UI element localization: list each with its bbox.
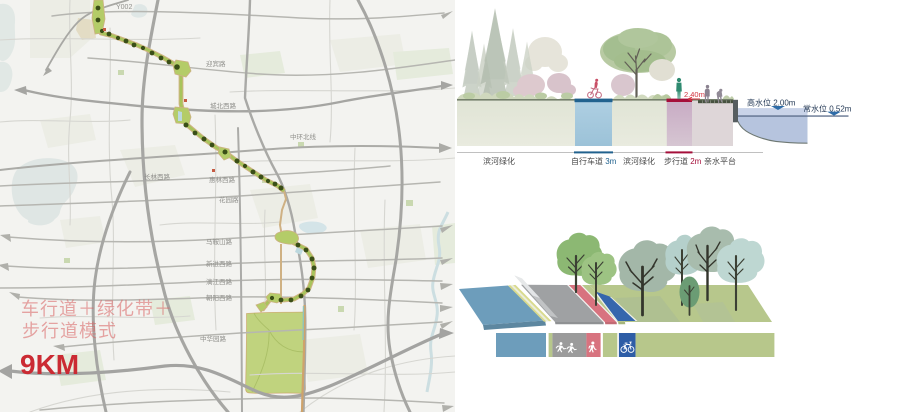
svg-text:常水位 0.52m: 常水位 0.52m — [803, 104, 852, 114]
svg-text:长林西路: 长林西路 — [144, 172, 171, 181]
svg-text:惠林西路: 惠林西路 — [209, 175, 236, 184]
svg-text:城北西路: 城北西路 — [210, 101, 237, 110]
svg-text:滨河绿化: 滨河绿化 — [623, 156, 655, 166]
svg-text:9KM: 9KM — [20, 349, 79, 380]
svg-text:亲水平台: 亲水平台 — [704, 156, 736, 166]
svg-text:新进西路: 新进西路 — [206, 259, 233, 268]
svg-text:自行车道 3m: 自行车道 3m — [571, 156, 617, 166]
svg-text:Y002: Y002 — [116, 4, 132, 11]
svg-text:中华园路: 中华园路 — [200, 334, 227, 343]
svg-text:滨河绿化: 滨河绿化 — [483, 156, 515, 166]
svg-text:迎宾路: 迎宾路 — [206, 59, 226, 68]
svg-text:花园路: 花园路 — [219, 195, 239, 204]
svg-text:漓江西路: 漓江西路 — [206, 277, 233, 286]
svg-text:步行道模式: 步行道模式 — [22, 321, 117, 341]
svg-text:2.40m: 2.40m — [684, 90, 705, 99]
svg-text:朝阳西路: 朝阳西路 — [206, 293, 233, 302]
svg-text:车行道＋绿化带＋: 车行道＋绿化带＋ — [21, 299, 173, 319]
svg-text:步行道 2m: 步行道 2m — [664, 156, 702, 166]
svg-text:马鞍山路: 马鞍山路 — [206, 237, 233, 246]
svg-text:中环北线: 中环北线 — [290, 132, 317, 141]
